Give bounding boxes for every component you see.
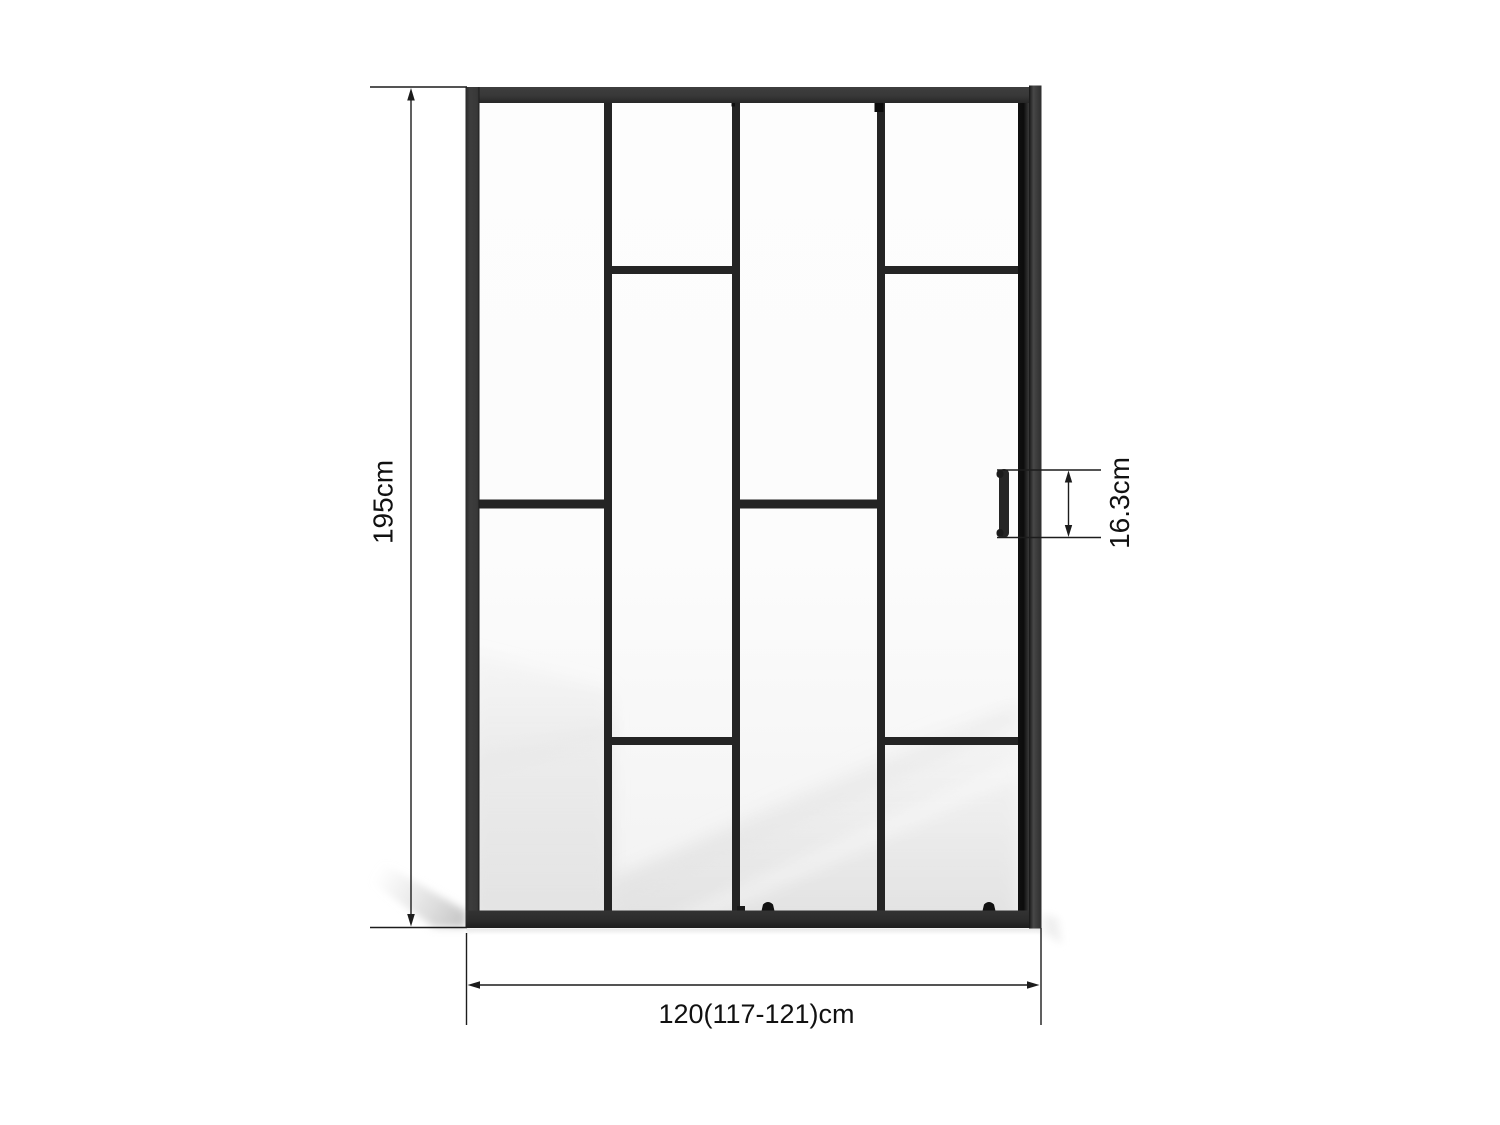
svg-text:120(117-121)cm: 120(117-121)cm <box>658 999 854 1029</box>
svg-text:16.3cm: 16.3cm <box>1104 457 1135 549</box>
svg-text:195cm: 195cm <box>368 460 399 544</box>
